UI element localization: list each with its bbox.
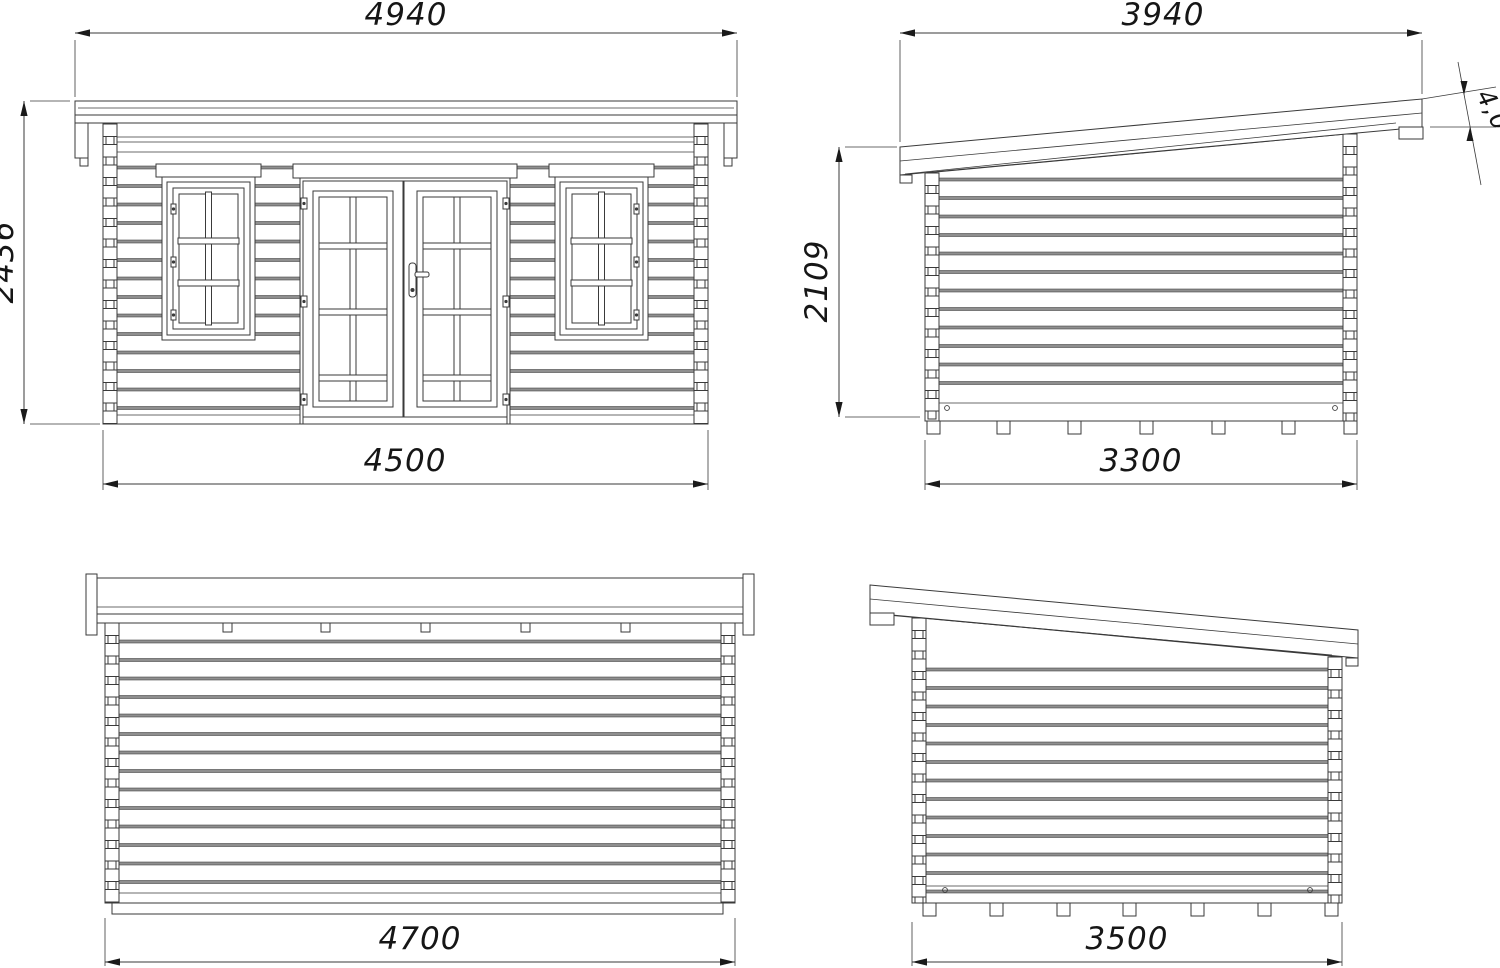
drawing-sheet: 4940 2436 4500 3940 4,0° 2109 3300 4700 … — [0, 0, 1500, 968]
side-height-dimension: 2109 — [799, 240, 835, 323]
side-overall-depth-dimension: 3940 — [1122, 0, 1205, 33]
front-height-dimension: 2436 — [0, 221, 21, 304]
front-wall-width-dimension: 4500 — [364, 443, 447, 479]
side-wall-depth-dimension: 3300 — [1100, 443, 1183, 479]
front-overall-width-dimension: 4940 — [365, 0, 448, 33]
front-elevation — [20, 29, 737, 490]
technical-drawing: 4940 2436 4500 3940 4,0° 2109 3300 4700 … — [0, 0, 1500, 968]
left-side-elevation — [870, 585, 1358, 966]
roof-angle-dimension: 4,0° — [1470, 84, 1500, 147]
left-side-wall-depth-dimension: 3500 — [1086, 921, 1169, 957]
right-side-elevation — [835, 29, 1496, 490]
rear-elevation — [86, 574, 754, 966]
rear-wall-width-dimension: 4700 — [379, 921, 462, 957]
